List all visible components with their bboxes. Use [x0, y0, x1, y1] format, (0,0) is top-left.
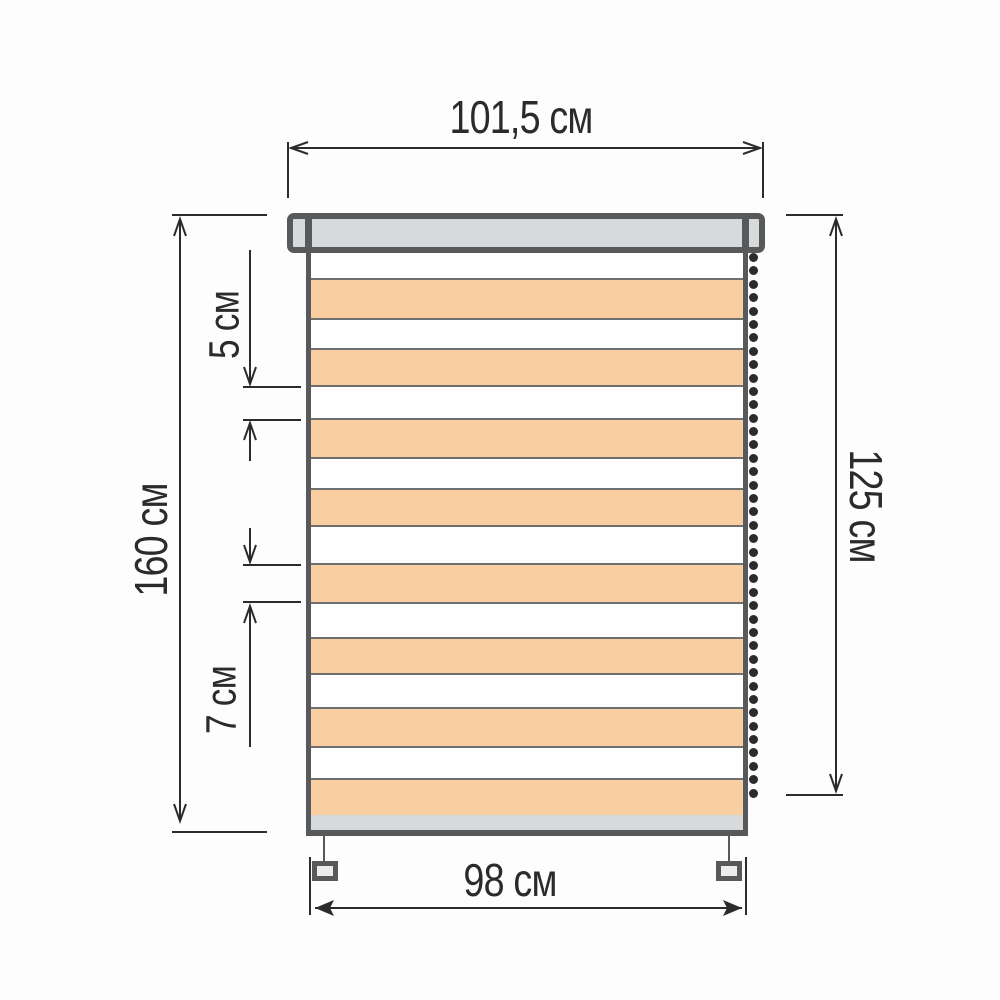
chain-bead — [749, 481, 758, 490]
transparent-stripe — [311, 748, 743, 780]
chain-bead — [749, 548, 758, 557]
chain-bead — [749, 360, 758, 369]
chain-bead — [749, 534, 758, 543]
fabric-stripe — [311, 780, 743, 815]
chain-bead — [749, 668, 758, 677]
chain-bead — [749, 347, 758, 356]
chain-bead — [749, 601, 758, 610]
bead-chain — [749, 253, 758, 798]
dimension-label-left-height: 160 см — [124, 483, 178, 596]
fabric-stripe — [311, 490, 743, 527]
chain-bead — [749, 387, 758, 396]
chain-bead — [749, 307, 758, 316]
bracket-link-right — [728, 836, 730, 861]
chain-bead — [749, 427, 758, 436]
fabric-edge-right — [743, 253, 748, 836]
bracket-link-left — [323, 836, 325, 861]
transparent-stripe — [311, 253, 743, 280]
chain-bead — [749, 588, 758, 597]
fabric-stripe — [311, 280, 743, 320]
chain-bead — [749, 293, 758, 302]
chain-bead — [749, 467, 758, 476]
chain-bead — [749, 748, 758, 757]
chain-bead — [749, 253, 758, 262]
cassette-endcap-divider-left — [305, 217, 312, 249]
transparent-stripe — [311, 527, 743, 565]
stripe-pattern — [311, 253, 743, 815]
chain-bead — [749, 414, 758, 423]
chain-bead — [749, 266, 758, 275]
chain-bead — [749, 762, 758, 771]
chain-bead — [749, 789, 758, 798]
chain-bead — [749, 615, 758, 624]
fabric-edge-left — [306, 253, 311, 836]
transparent-stripe — [311, 675, 743, 709]
fabric-stripe — [311, 565, 743, 604]
chain-bead — [749, 400, 758, 409]
chain-bead — [749, 454, 758, 463]
bottom-rail-edge — [306, 830, 748, 836]
chain-bead — [749, 775, 758, 784]
chain-bead — [749, 521, 758, 530]
chain-bead — [749, 655, 758, 664]
mounting-bracket-right — [716, 861, 742, 881]
chain-bead — [749, 561, 758, 570]
fabric-stripe — [311, 350, 743, 387]
cassette-headrail — [287, 213, 765, 253]
chain-bead — [749, 695, 758, 704]
fabric-stripe — [311, 709, 743, 748]
blind-fabric — [306, 253, 748, 836]
transparent-stripe — [311, 320, 743, 350]
mounting-bracket-left — [312, 861, 338, 881]
chain-bead — [749, 641, 758, 650]
chain-bead — [749, 280, 758, 289]
chain-bead — [749, 574, 758, 583]
chain-bead — [749, 333, 758, 342]
chain-bead — [749, 708, 758, 717]
chain-bead — [749, 494, 758, 503]
chain-bead — [749, 440, 758, 449]
dimension-label-right-height: 125 см — [839, 449, 893, 562]
chain-bead — [749, 682, 758, 691]
fabric-stripe — [311, 420, 743, 459]
chain-bead — [749, 628, 758, 637]
dimension-label-bottom-width: 98 см — [463, 853, 556, 907]
chain-bead — [749, 374, 758, 383]
transparent-stripe — [311, 387, 743, 420]
fabric-stripe — [311, 639, 743, 675]
dimension-label-top-width: 101,5 см — [449, 90, 592, 144]
transparent-stripe — [311, 459, 743, 490]
cassette-endcap-divider-right — [742, 217, 749, 249]
bottom-rail — [311, 815, 743, 830]
transparent-stripe — [311, 604, 743, 639]
roller-blind-dimension-diagram: 101,5 см 160 см 125 см 98 см 5 см 7 см — [0, 0, 1000, 1000]
chain-bead — [749, 507, 758, 516]
chain-bead — [749, 735, 758, 744]
chain-bead — [749, 320, 758, 329]
dimension-label-transparent-stripe: 5 см — [201, 291, 250, 359]
chain-bead — [749, 722, 758, 731]
dimension-label-fabric-stripe: 7 см — [198, 666, 247, 734]
